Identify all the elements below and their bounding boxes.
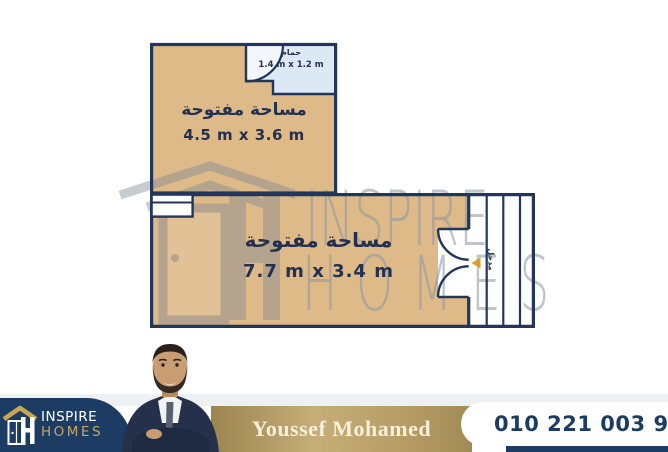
brand-name-line2: HOMES xyxy=(41,426,103,440)
agent-name-bar: Youssef Mohamed xyxy=(211,406,472,452)
counter-unit xyxy=(152,195,193,217)
entrance-door-leaves xyxy=(438,229,469,297)
brand-logo-text: INSPIRE HOMES xyxy=(41,411,103,439)
entrance-door-arcs xyxy=(438,229,469,297)
upper-room-dimensions: 4.5 m x 3.6 m xyxy=(152,126,336,144)
lower-room-dimensions: 7.7 m x 3.4 m xyxy=(196,261,441,282)
real-estate-flyer: INSPIRE HOMES مساحة مفتوحة 4.5 m x 3.6 m… xyxy=(0,0,668,452)
floor-plan-walls xyxy=(0,0,668,452)
upper-room-label: مساحة مفتوحة xyxy=(152,100,336,120)
entry-arrow-icon xyxy=(472,258,481,269)
lower-room-label: مساحة مفتوحة xyxy=(196,228,441,252)
house-logo-icon xyxy=(2,404,38,446)
bathroom-dimensions: 1.4 m x 1.2 m xyxy=(248,60,334,70)
phone-pill: 010 221 003 97 xyxy=(461,402,668,446)
agent-name: Youssef Mohamed xyxy=(252,416,431,442)
bathroom-label: حمام xyxy=(248,48,334,57)
brand-name-line1: INSPIRE xyxy=(41,411,103,425)
entrance-label: مدخل xyxy=(487,248,496,270)
phone-number: 010 221 003 97 xyxy=(494,412,668,436)
agent-photo xyxy=(102,341,240,452)
